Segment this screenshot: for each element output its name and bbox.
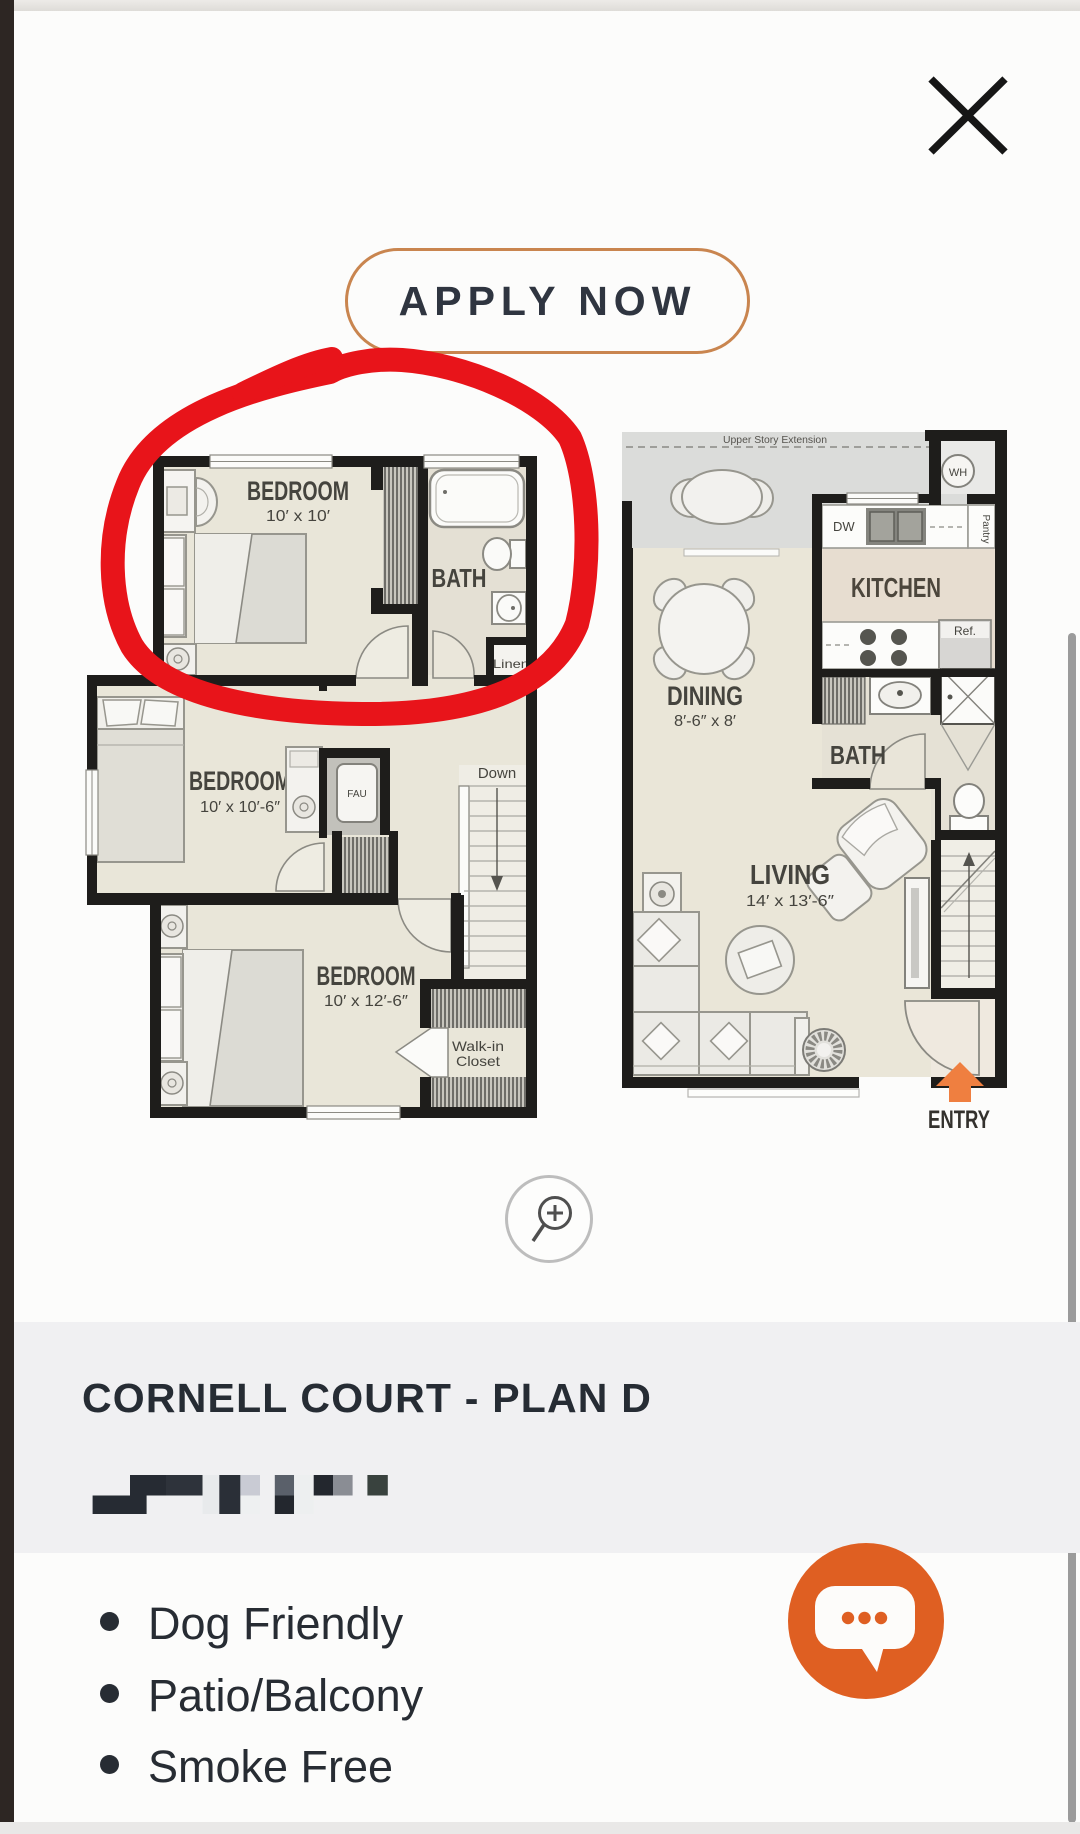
svg-text:BATH: BATH bbox=[830, 740, 886, 770]
svg-text:10′ x 10′: 10′ x 10′ bbox=[266, 508, 330, 525]
svg-text:ENTRY: ENTRY bbox=[928, 1106, 990, 1134]
svg-text:DINING: DINING bbox=[667, 681, 743, 711]
svg-text:Walk-in: Walk-in bbox=[452, 1038, 504, 1054]
svg-text:DW: DW bbox=[833, 519, 855, 534]
svg-text:Down: Down bbox=[478, 765, 516, 782]
svg-text:KITCHEN: KITCHEN bbox=[851, 572, 941, 603]
svg-text:Pantry: Pantry bbox=[980, 515, 991, 544]
svg-text:14′ x 13′-6″: 14′ x 13′-6″ bbox=[746, 893, 834, 910]
svg-text:Linen: Linen bbox=[493, 657, 529, 671]
svg-text:BEDROOM: BEDROOM bbox=[317, 961, 416, 991]
svg-text:FAU: FAU bbox=[347, 789, 366, 800]
svg-text:LIVING: LIVING bbox=[750, 859, 830, 890]
svg-text:Upper Story Extension: Upper Story Extension bbox=[723, 435, 827, 446]
svg-text:8′-6″ x 8′: 8′-6″ x 8′ bbox=[674, 713, 736, 730]
svg-text:10′ x 10′-6″: 10′ x 10′-6″ bbox=[200, 799, 280, 816]
svg-text:10′ x 12′-6″: 10′ x 12′-6″ bbox=[324, 993, 408, 1010]
svg-text:BEDROOM: BEDROOM bbox=[247, 476, 349, 506]
svg-text:Closet: Closet bbox=[456, 1053, 500, 1069]
svg-text:BEDROOM: BEDROOM bbox=[189, 766, 291, 796]
svg-text:BATH: BATH bbox=[432, 563, 487, 593]
svg-text:Ref.: Ref. bbox=[954, 624, 976, 638]
svg-text:WH: WH bbox=[949, 467, 967, 479]
